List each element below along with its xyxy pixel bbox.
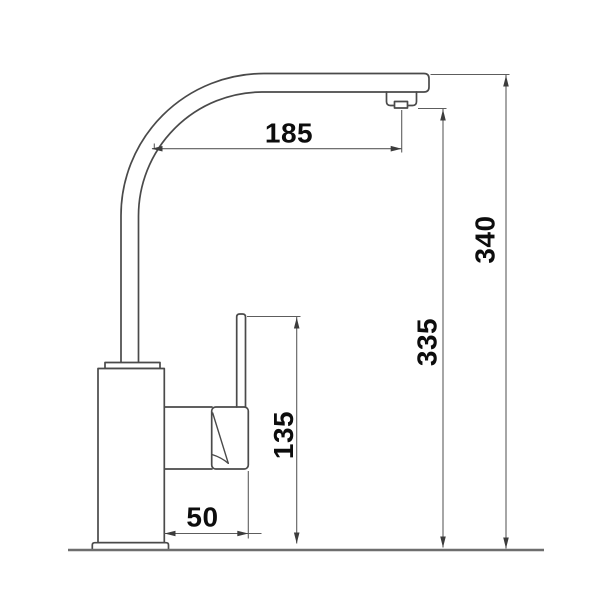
arrow-spout-reach-right <box>391 146 402 152</box>
faucet-outline <box>92 74 429 550</box>
dim-label-handle-height: 135 <box>268 411 299 459</box>
dim-label-overall-height: 340 <box>470 215 501 263</box>
arrow-handle-projection-right <box>237 531 248 537</box>
aerator-nozzle <box>395 102 408 109</box>
dim-label-spout-reach: 185 <box>265 118 313 149</box>
arrow-overall-height-bottom <box>503 538 509 549</box>
arrow-handle-height-top <box>294 318 300 329</box>
arrow-overall-height-top <box>503 76 509 87</box>
dimension-arrows <box>152 76 509 549</box>
arrow-outlet-height-top <box>440 110 446 121</box>
body-top-flange <box>105 363 160 369</box>
arrow-handle-projection-left <box>165 531 176 537</box>
faucet-body <box>98 369 164 543</box>
dim-label-handle-projection: 50 <box>186 502 218 533</box>
dim-label-outlet-height: 335 <box>412 318 443 366</box>
dimension-labels: 185 340 335 135 50 <box>186 118 500 533</box>
faucet-technical-drawing: 185 340 335 135 50 <box>0 0 600 600</box>
arrow-outlet-height-bottom <box>440 537 446 548</box>
dimension-lines <box>152 75 510 549</box>
handle-base <box>212 407 249 469</box>
technical-drawing-canvas: 185 340 335 135 50 <box>0 0 600 600</box>
handle-lever <box>237 314 246 407</box>
arrow-handle-height-bottom <box>294 533 300 544</box>
base-flange <box>92 543 168 550</box>
